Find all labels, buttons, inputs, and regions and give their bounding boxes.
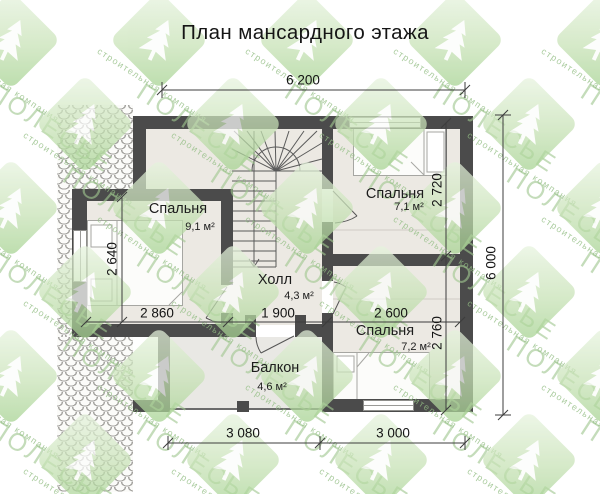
dimension-mid-left: 2 860 [140, 306, 174, 321]
room-label-bedroom-left: Спальня [149, 201, 207, 217]
floor-plan-canvas: План мансардного этажа [0, 0, 600, 494]
dimension-bedroom-left-depth: 2 640 [105, 242, 120, 276]
page-title: План мансардного этажа [181, 21, 429, 45]
dimension-mid-right: 2 600 [374, 306, 408, 321]
dimension-mid-center: 1 900 [261, 306, 295, 321]
room-label-hall: Холл [258, 272, 292, 288]
room-label-bedroom-bottom-right: Спальня [356, 323, 414, 339]
room-area-balcony: 4,6 м² [257, 381, 287, 393]
dimension-bottom-left: 3 080 [226, 426, 260, 441]
dimension-bottom-right: 3 000 [376, 426, 410, 441]
room-area-bedroom-top-right: 7,1 м² [394, 201, 424, 213]
room-label-balcony: Балкон [251, 360, 300, 376]
dimension-overall-height: 6 000 [484, 246, 499, 280]
room-area-bedroom-left: 9,1 м² [185, 221, 215, 233]
room-label-bedroom-top-right: Спальня [366, 186, 424, 202]
room-area-bedroom-bottom-right: 7,2 м² [401, 341, 431, 353]
room-area-hall: 4,3 м² [284, 290, 314, 302]
dimension-bedroom-tr-depth: 2 720 [430, 173, 445, 207]
dimension-overall-width: 6 200 [286, 73, 320, 88]
dimension-lines [81, 82, 511, 450]
dimension-bedroom-br-depth: 2 760 [430, 316, 445, 350]
